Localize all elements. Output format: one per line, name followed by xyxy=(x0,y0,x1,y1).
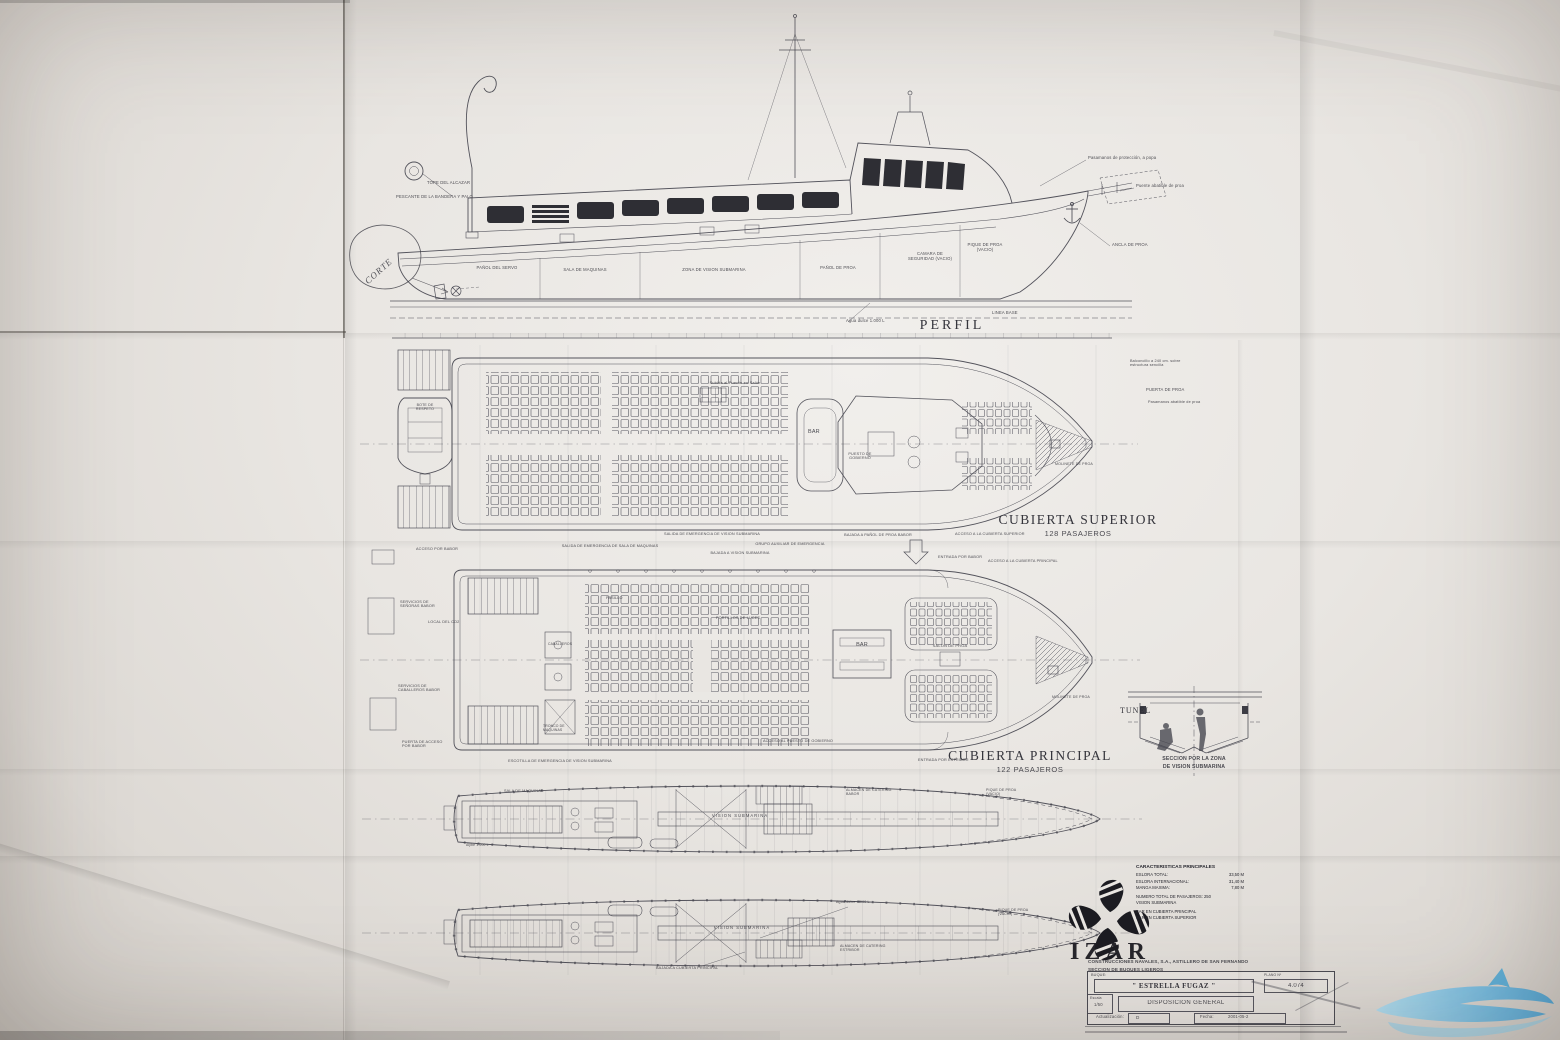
fecha-value: 2001-05-2 xyxy=(1228,1015,1248,1020)
label-salida-maquinas: SALIDA DE EMERGENCIA DE SALA DE MAQUINAS xyxy=(562,544,659,548)
label-bajada-panol: BAJADA A PAÑOL DE PROA BABOR xyxy=(844,533,912,537)
label-catering-babor: ALMACEN DE CATERING BABOR xyxy=(846,788,892,796)
wheelhouse-windows xyxy=(862,158,965,190)
label-pique-proa: PIQUE DE PROA (VACIO) xyxy=(965,243,1005,253)
label-pique-proa-2: PIQUE DE PROA (VACIO) xyxy=(998,908,1036,916)
deck-capacity-superior: 128 PASAJEROS xyxy=(1045,530,1112,539)
main-mast xyxy=(748,15,846,181)
act-value: D xyxy=(1136,1015,1139,1020)
char-value: 7,80 M xyxy=(1231,885,1244,892)
label-escotilla-emergencia: ESCOTILLA DE EMERGENCIA DE VISION SUBMAR… xyxy=(508,759,612,763)
superior-deck-plan xyxy=(398,350,1092,530)
principal-deck-plan xyxy=(368,540,1092,750)
escala-label: Escala xyxy=(1090,996,1102,1000)
label-agua-dulce-hold: Agua dulce 1.000 L xyxy=(836,900,870,904)
label-acceso-gobierno: ACCESO AL PUESTO DE GOBIERNO xyxy=(763,739,833,743)
blueprint-photo: TOPE DEL ALCAZAR PESCANTE DE LA BANDERA … xyxy=(0,0,1560,1040)
company-line1: CONSTRUCCIONES NAVALES, S.A., ASTILLERO … xyxy=(1088,959,1248,964)
label-puesto-gobierno: PUESTO DE GOBIERNO xyxy=(843,452,877,461)
label-acceso-superior: ACCESO A LA CUBIERTA SUPERIOR xyxy=(955,532,1025,536)
label-salida-vision: SALIDA DE EMERGENCIA DE VISION SUBMARINA xyxy=(664,532,760,536)
label-portillos: PORTILLOS DE LUCES xyxy=(716,616,760,620)
wave-watermark-icon xyxy=(1376,968,1554,1037)
label-camara-seguridad: CAMARA DE SEGURIDAD (VACIO) xyxy=(904,252,956,262)
label-bar-superior: BAR xyxy=(808,429,820,435)
char-line: BAR EN CUBIERTA SUPERIOR xyxy=(1136,915,1244,922)
tunnel-section xyxy=(1128,686,1262,776)
bow-pulpit xyxy=(1040,160,1166,246)
buque-label: BUQUE: xyxy=(1091,973,1106,977)
label-panol-servo: PAÑOL DEL SERVO xyxy=(477,266,518,271)
label-linea-base: LINEA BASE xyxy=(992,311,1018,316)
label-vision-submarina-1: VISION SUBMARINA xyxy=(712,814,768,819)
label-molinete-principal: MOLINETE DE PROA xyxy=(1052,695,1090,699)
act-label: Actualización: xyxy=(1096,1015,1124,1020)
escala-value: 1/50 xyxy=(1094,1003,1103,1008)
deck-title-principal: CUBIERTA PRINCIPAL xyxy=(948,748,1112,764)
label-servicios-caballeros: SERVICIOS DE CABALLEROS BABOR xyxy=(398,684,444,693)
act-cell-border xyxy=(1128,1013,1170,1024)
label-seccion-1: SECCION POR LA ZONA xyxy=(1162,756,1225,762)
blueprint-drawing xyxy=(0,0,1560,1040)
label-salon-proa: SALON DE PROA xyxy=(933,644,968,649)
label-sala-maquinas: SALA DE MAQUINAS xyxy=(563,268,606,273)
view-title-perfil: PERFIL xyxy=(920,318,985,335)
label-bar-principal: BAR xyxy=(856,642,868,648)
label-puerta-proa: PUERTA DE PROA xyxy=(1146,388,1184,393)
entry-arrow-icon xyxy=(904,540,928,564)
propeller-rudder xyxy=(434,284,480,299)
label-seccion-2: DE VISION SUBMARINA xyxy=(1163,764,1225,770)
label-tope-alcazar: TOPE DEL ALCAZAR xyxy=(427,181,470,186)
label-grupo-auxiliar: GRUPO AUXILIAR DE EMERGENCIA xyxy=(755,542,824,546)
label-puente-abatible: Puente abatible de proa xyxy=(1136,184,1184,189)
profile-view xyxy=(390,15,1166,339)
ship-name: " ESTRELLA FUGAZ " xyxy=(1132,982,1215,990)
label-agua-dulce-perfil: Agua dulce 1.000 L xyxy=(846,319,885,324)
main-characteristics-block: CARACTERISTICAS PRINCIPALES ESLORA TOTAL… xyxy=(1136,865,1244,922)
label-bajada-vision: BAJADA A VISION SUBMARINA xyxy=(710,551,769,555)
label-pique-proa-1: PIQUE DE PROA (VACIO) xyxy=(986,788,1024,796)
louver-vent-icon xyxy=(532,205,569,223)
label-ancla-proa: ANCLA DE PROA xyxy=(1112,243,1148,248)
label-bote-respeto: BOTE DE RESPETO xyxy=(408,403,442,411)
label-local-co2: LOCAL DEL CO2 xyxy=(428,620,459,624)
drawing-title: DISPOSICION GENERAL xyxy=(1147,1000,1224,1007)
label-acceso-principal: ACCESO A LA CUBIERTA PRINCIPAL xyxy=(988,559,1058,563)
label-molinete-superior: MOLINETE DE PROA xyxy=(1055,462,1093,466)
fecha-label: Fecha: xyxy=(1200,1015,1214,1020)
label-pasamanos-abatible: Pasamanos abatible de proa xyxy=(1148,400,1208,404)
passenger-figures xyxy=(1157,709,1206,752)
deck-capacity-principal: 122 PASAJEROS xyxy=(997,766,1064,775)
char-line: VISION SUBMARINA xyxy=(1136,900,1244,907)
label-balconcillo: Balconcillo a 240 cm. sobre estructura s… xyxy=(1130,359,1196,368)
label-pasillo: PASILLO xyxy=(606,596,623,600)
label-subida-puente: Subida al Puente en Salón xyxy=(709,381,760,386)
label-panol-proa: PAÑOL DE PROA xyxy=(820,266,856,271)
characteristics-title: CARACTERISTICAS PRINCIPALES xyxy=(1136,865,1244,870)
label-tunel: TUNEL xyxy=(1120,706,1151,715)
label-servicios-senoras: SERVICIOS DE SEÑORAS BABOR xyxy=(400,600,446,609)
deck-title-superior: CUBIERTA SUPERIOR xyxy=(998,512,1157,528)
radar-mast xyxy=(890,91,930,145)
label-tronco-maquinas: TRONCO DE MAQUINAS xyxy=(543,724,575,732)
plano-no: 4.074 xyxy=(1288,983,1304,990)
drawing-title-cell: DISPOSICION GENERAL xyxy=(1118,996,1254,1012)
label-hold-sala-maquinas: SALA DE MAQUINAS xyxy=(504,789,544,793)
char-label: MANGA MAXIMA: xyxy=(1136,885,1170,892)
stern-gear xyxy=(405,76,496,238)
label-entrada-estribor: ENTRADA POR ESTRIBOR xyxy=(918,758,969,762)
label-bajada-principal: BAJADA A CUBIERTA PRINCIPAL xyxy=(656,966,718,970)
label-acceso-babor: ACCESO POR BABOR xyxy=(416,547,458,551)
label-zona-vision: ZONA DE VISION SUBMARINA xyxy=(682,268,745,273)
anchor-icon xyxy=(1064,203,1080,224)
plano-label: PLANO Nº xyxy=(1264,973,1281,977)
label-catering-estribor: ALMACEN DE CATERING ESTRIBOR xyxy=(840,944,886,952)
label-aljibe: Aljibe 1.000 L xyxy=(466,843,489,847)
label-caballeros: CABALLEROS xyxy=(548,642,572,646)
title-block: BUQUE: " ESTRELLA FUGAZ " PLANO Nº 4.074… xyxy=(1087,971,1335,1025)
label-entrada-babor: ENTRADA POR BABOR xyxy=(938,555,982,559)
label-vision-submarina-2: VISION SUBMARINA xyxy=(714,926,770,931)
label-pasamanos-popa: Pasamanos de protección, a popa xyxy=(1088,156,1156,161)
escala-cell: Escala 1/50 xyxy=(1088,994,1113,1014)
label-puerta-acceso: PUERTA DE ACCESO POR BABOR xyxy=(402,740,448,749)
ship-name-cell: " ESTRELLA FUGAZ " xyxy=(1094,979,1254,993)
label-pescante: PESCANTE DE LA BANDERA Y PALO xyxy=(396,195,473,200)
